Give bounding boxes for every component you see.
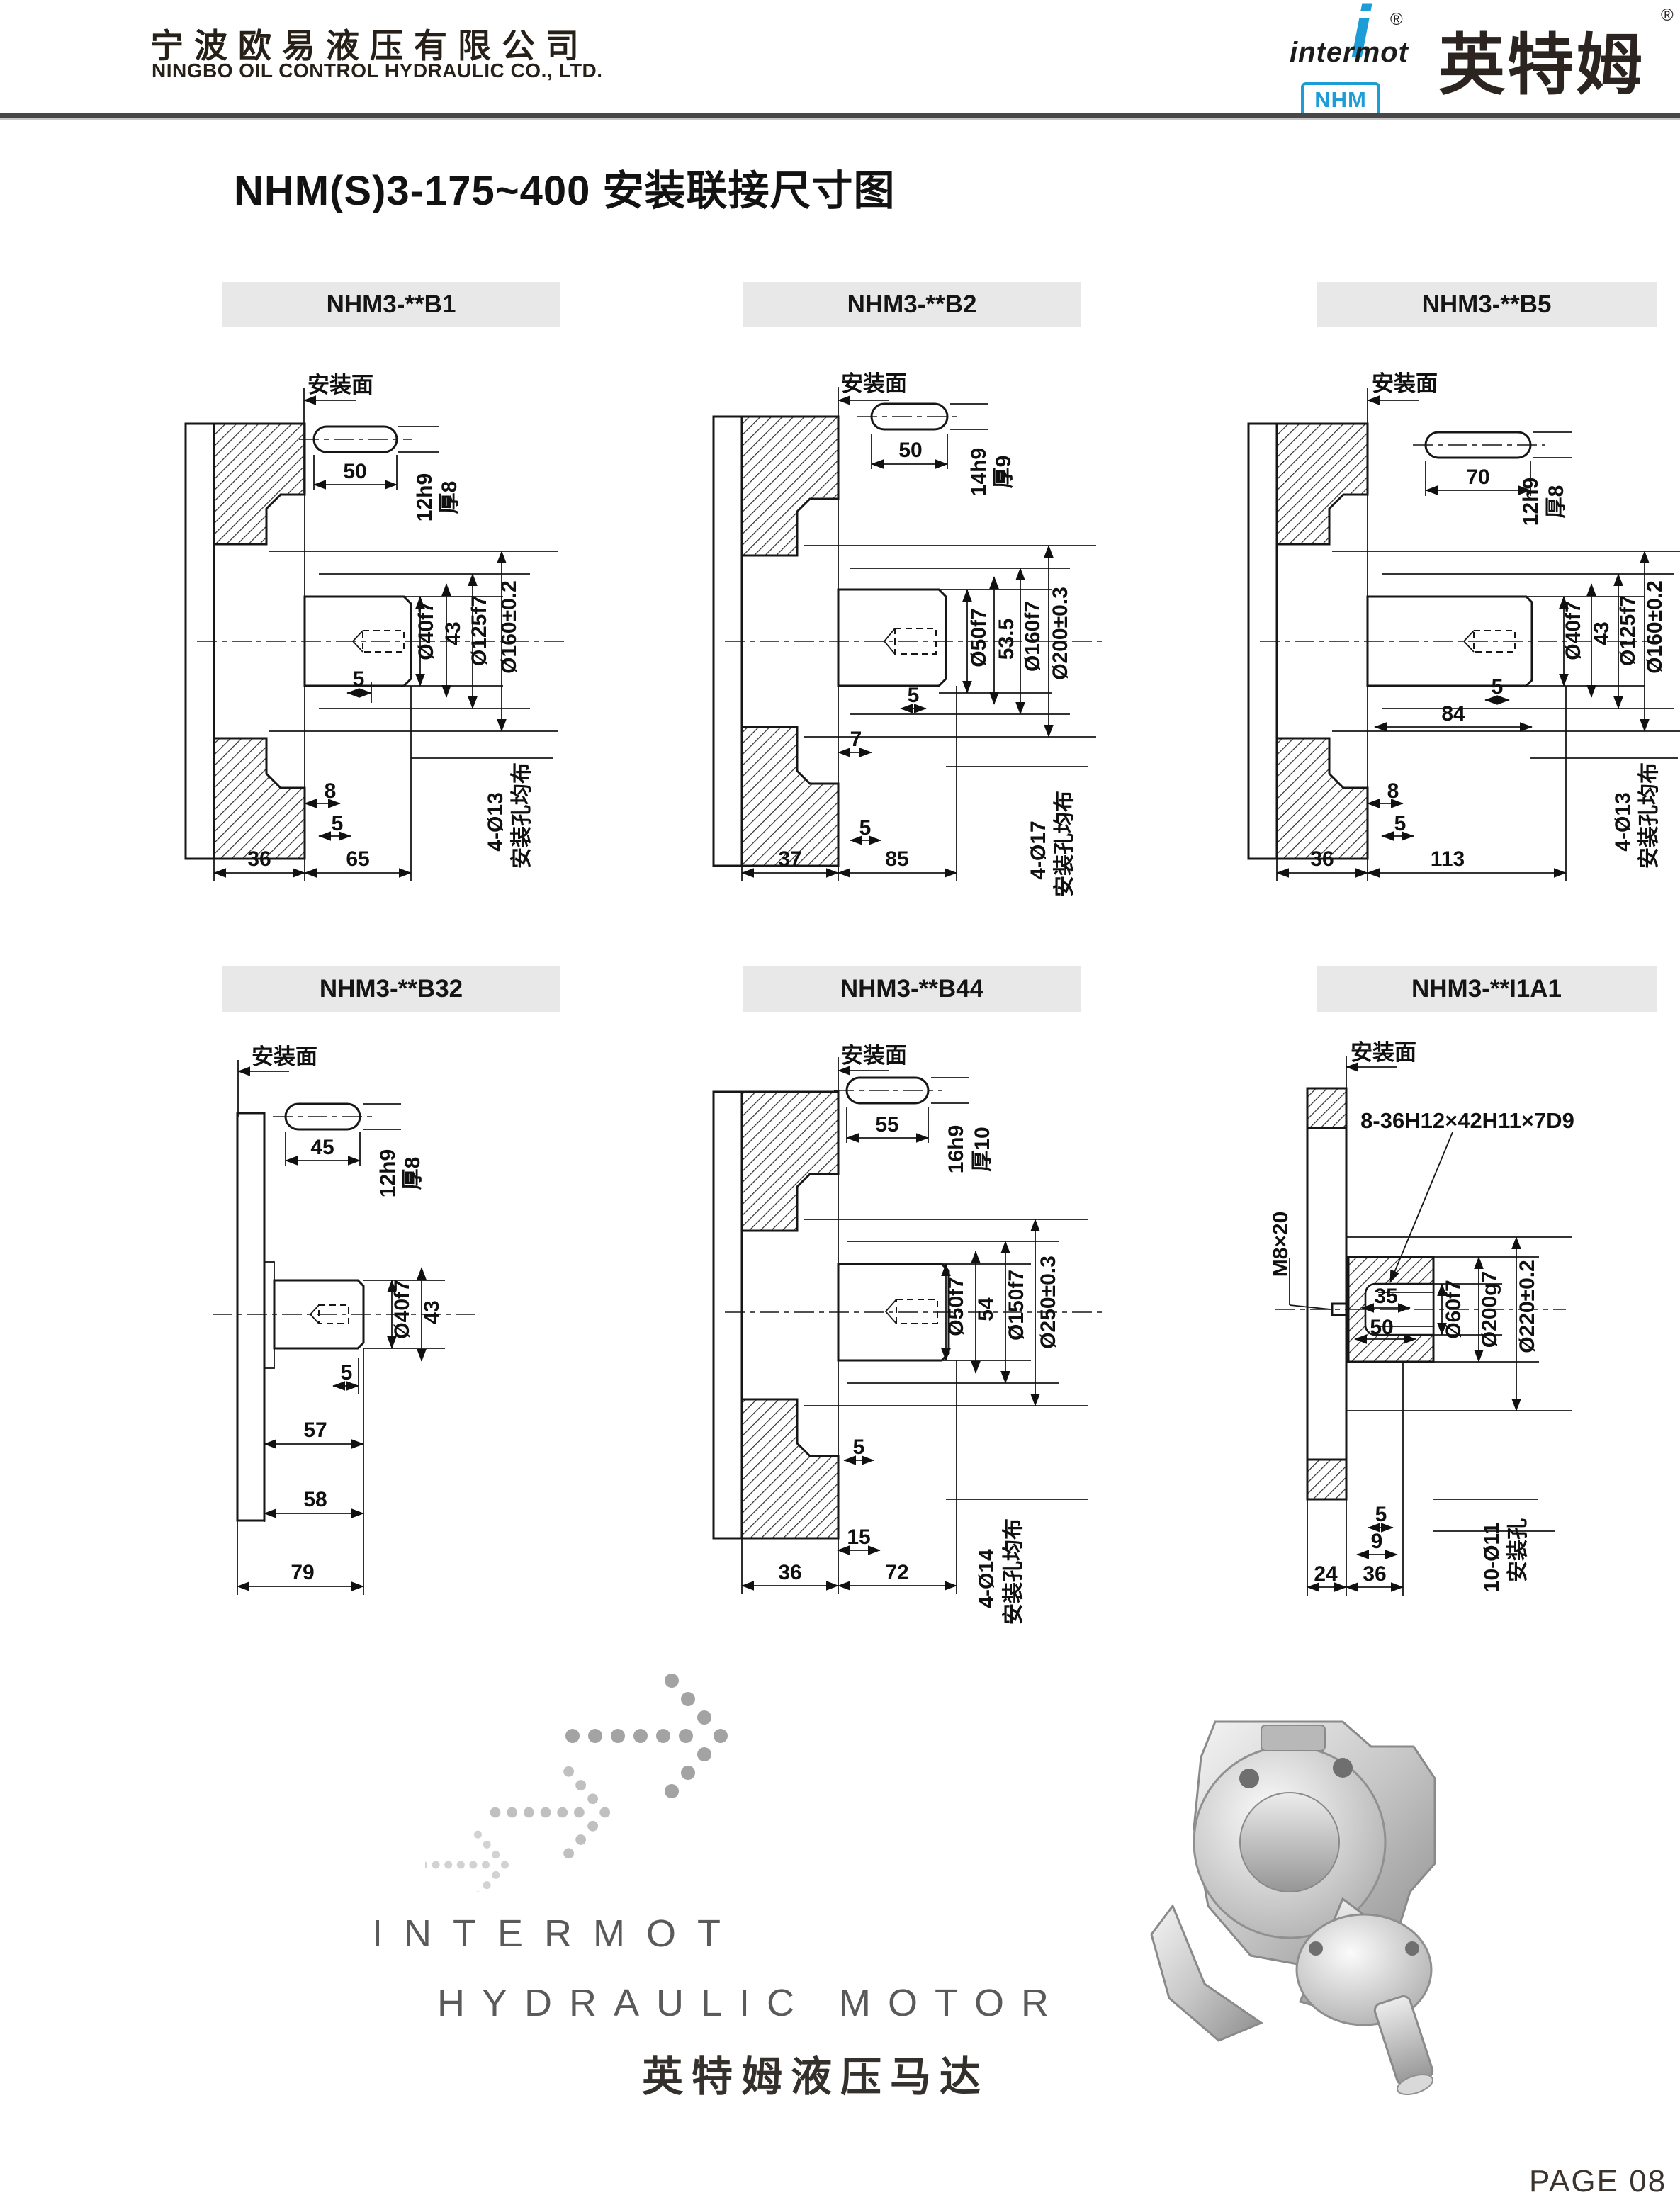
dim-shaft-length: 43 [1590,621,1614,645]
drawing-label-b5: NHM3-**B5 [1317,282,1657,327]
dim-lip: 5 [1394,812,1406,836]
dim-shaft-dia: Ø50f7 [967,608,991,667]
dim-extension: 36 [1363,1562,1386,1586]
dim-bolt-circle: Ø220±0.2 [1516,1260,1540,1353]
dim-bolt-circle: Ø250±0.3 [1037,1256,1061,1349]
dim-shaft-length: 53.5 [995,619,1019,660]
drawing-label-b1: NHM3-**B1 [222,282,560,327]
mount-face-label: 安装面 [252,1039,317,1071]
dim-key-thickness: 厚8 [1538,485,1569,519]
nhm-badge: NHM [1301,82,1380,118]
dim-step: 7 [850,728,862,752]
drawing-b1: 安装面 50 12h9 厚8 Ø40f7 43 Ø125f7 Ø160±0.2 … [106,333,631,971]
dim-extension: 72 [885,1561,908,1585]
dim-key-length: 50 [898,439,922,463]
brand-name-cn: 英特姆 [1438,11,1645,108]
dim-bolt-circle: Ø200±0.3 [1049,587,1073,680]
dim-extension: 113 [1431,847,1465,871]
dim-key-length: 70 [1466,466,1489,490]
dotted-arrows-decoration [425,1658,794,1892]
dim-extension: 65 [346,847,369,871]
drawing-b32: 安装面 45 12h9 厚8 Ø40f7 43 5 57 58 79 [106,1003,631,1676]
drawing-i1a1: 安装面 8-36H12×42H11×7D9 35 50 Ø60f7 Ø200g7… [1169,1003,1680,1676]
dim-plate-depth: 58 [303,1488,327,1512]
mount-face-label: 安装面 [841,1037,907,1069]
dim-spigot-dia: Ø125f7 [1616,595,1640,666]
dim-shaft-dia: Ø40f7 [415,601,439,660]
page-number: PAGE 08 [1529,2164,1667,2199]
dim-recess: 5 [353,667,365,692]
b1-section-drawing [106,333,631,971]
drawing-b2: 安装面 50 14h9 厚9 Ø50f7 53.5 Ø160f7 Ø200±0.… [634,333,1158,971]
dim-flange-width: 36 [1310,847,1334,871]
dim-plate-width: 24 [1314,1562,1337,1586]
dim-key-thickness: 厚9 [986,456,1017,489]
dim-shaft-dia: Ø50f7 [945,1277,969,1336]
dim-shaft-length: 43 [420,1300,444,1324]
dim-key-thickness: 厚10 [964,1127,996,1171]
mount-face-label: 安装面 [841,366,907,397]
slogan-intermot: INTERMOT [372,1912,742,1956]
registered-mark-icon: ® [1661,6,1674,26]
dim-spigot-dia: Ø150f7 [1005,1270,1029,1341]
dim-flange-width: 36 [247,847,271,871]
dim-bolt-circle: Ø160±0.2 [497,580,522,674]
dim-recess: 5 [908,684,920,708]
dim-flange-width: 36 [778,1561,801,1585]
dim-key-length: 55 [875,1113,898,1137]
mount-face-label: 安装面 [308,367,373,399]
dim-shaft-dia: Ø40f7 [390,1280,415,1338]
dim-flange-width: 37 [778,847,801,871]
b5-section-drawing [1169,333,1680,971]
dim-spigot-dia: Ø125f7 [468,595,492,666]
dim-key-thickness: 厚8 [395,1157,426,1190]
dim-side-thread: M8×20 [1269,1212,1293,1277]
dim-overall: 79 [291,1561,314,1585]
dim-shaft-length: 43 [441,621,466,645]
dim-lip: 5 [859,816,872,840]
motor-photo [1130,1693,1516,2101]
dim-bolt-circle: Ø160±0.2 [1643,580,1667,674]
header-rule-shadow [0,118,1680,120]
dim-recess: 5 [853,1435,865,1460]
mount-face-label: 安装面 [1372,366,1438,397]
slogan-cn: 英特姆液压马达 [642,2043,989,2103]
dim-shaft-length: 54 [974,1297,998,1321]
dim-socket-depth-1: 35 [1374,1285,1397,1309]
dim-recess: 5 [341,1361,353,1385]
dim-shaft-ext: 84 [1441,702,1465,726]
drawing-b44: 安装面 55 16h9 厚10 Ø50f7 54 Ø150f7 Ø250±0.3… [634,1003,1158,1676]
dim-spline-spec: 8-36H12×42H11×7D9 [1360,1108,1574,1134]
dim-hub-depth: 57 [303,1418,327,1443]
dim-mount-holes-note: 安装孔均布 [1047,791,1078,897]
dim-shaft-dia: Ø40f7 [1562,601,1586,660]
dim-lip: 5 [332,812,344,836]
dim-step: 8 [1387,779,1399,803]
intermot-logo-wordmark: intermot [1290,37,1409,69]
b2-section-drawing [634,333,1158,971]
i1a1-section-drawing [1169,1003,1680,1676]
dim-spigot-dia: Ø200g7 [1478,1271,1502,1348]
page-title: NHM(S)3-175~400 安装联接尺寸图 [234,157,896,217]
catalog-page: 宁波欧易液压有限公司 NINGBO OIL CONTROL HYDRAULIC … [0,0,1680,2200]
drawing-b5: 安装面 70 12h9 厚8 Ø40f7 43 Ø125f7 Ø160±0.2 … [1169,333,1680,971]
dim-mount-holes-note: 安装孔均布 [996,1518,1027,1625]
dim-step: 9 [1371,1530,1383,1554]
header-rule [0,113,1680,118]
dim-key-length: 50 [343,460,366,484]
dim-recess: 5 [1375,1503,1387,1527]
dim-hub-dia: Ø60f7 [1442,1280,1466,1338]
dim-recess: 5 [1492,675,1504,699]
dim-mount-holes-note: 安装孔 [1500,1518,1531,1582]
dim-key-length: 45 [310,1136,334,1160]
dim-key-thickness: 厚8 [432,481,463,514]
dim-step: 8 [325,779,337,803]
slogan-hydraulic-motor: HYDRAULIC MOTOR [437,1981,1066,2025]
drawing-label-b2: NHM3-**B2 [743,282,1081,327]
mount-face-label: 安装面 [1351,1034,1416,1066]
b32-section-drawing [106,1003,631,1676]
dim-socket-depth-2: 50 [1370,1316,1393,1340]
dim-step: 15 [847,1525,870,1550]
dim-extension: 85 [885,847,908,871]
registered-mark-icon: ® [1390,10,1403,30]
company-name-en: NINGBO OIL CONTROL HYDRAULIC CO., LTD. [152,60,603,82]
dim-mount-holes-note: 安装孔均布 [504,762,535,869]
dim-spigot-dia: Ø160f7 [1021,601,1045,672]
dim-mount-holes-note: 安装孔均布 [1631,762,1662,869]
